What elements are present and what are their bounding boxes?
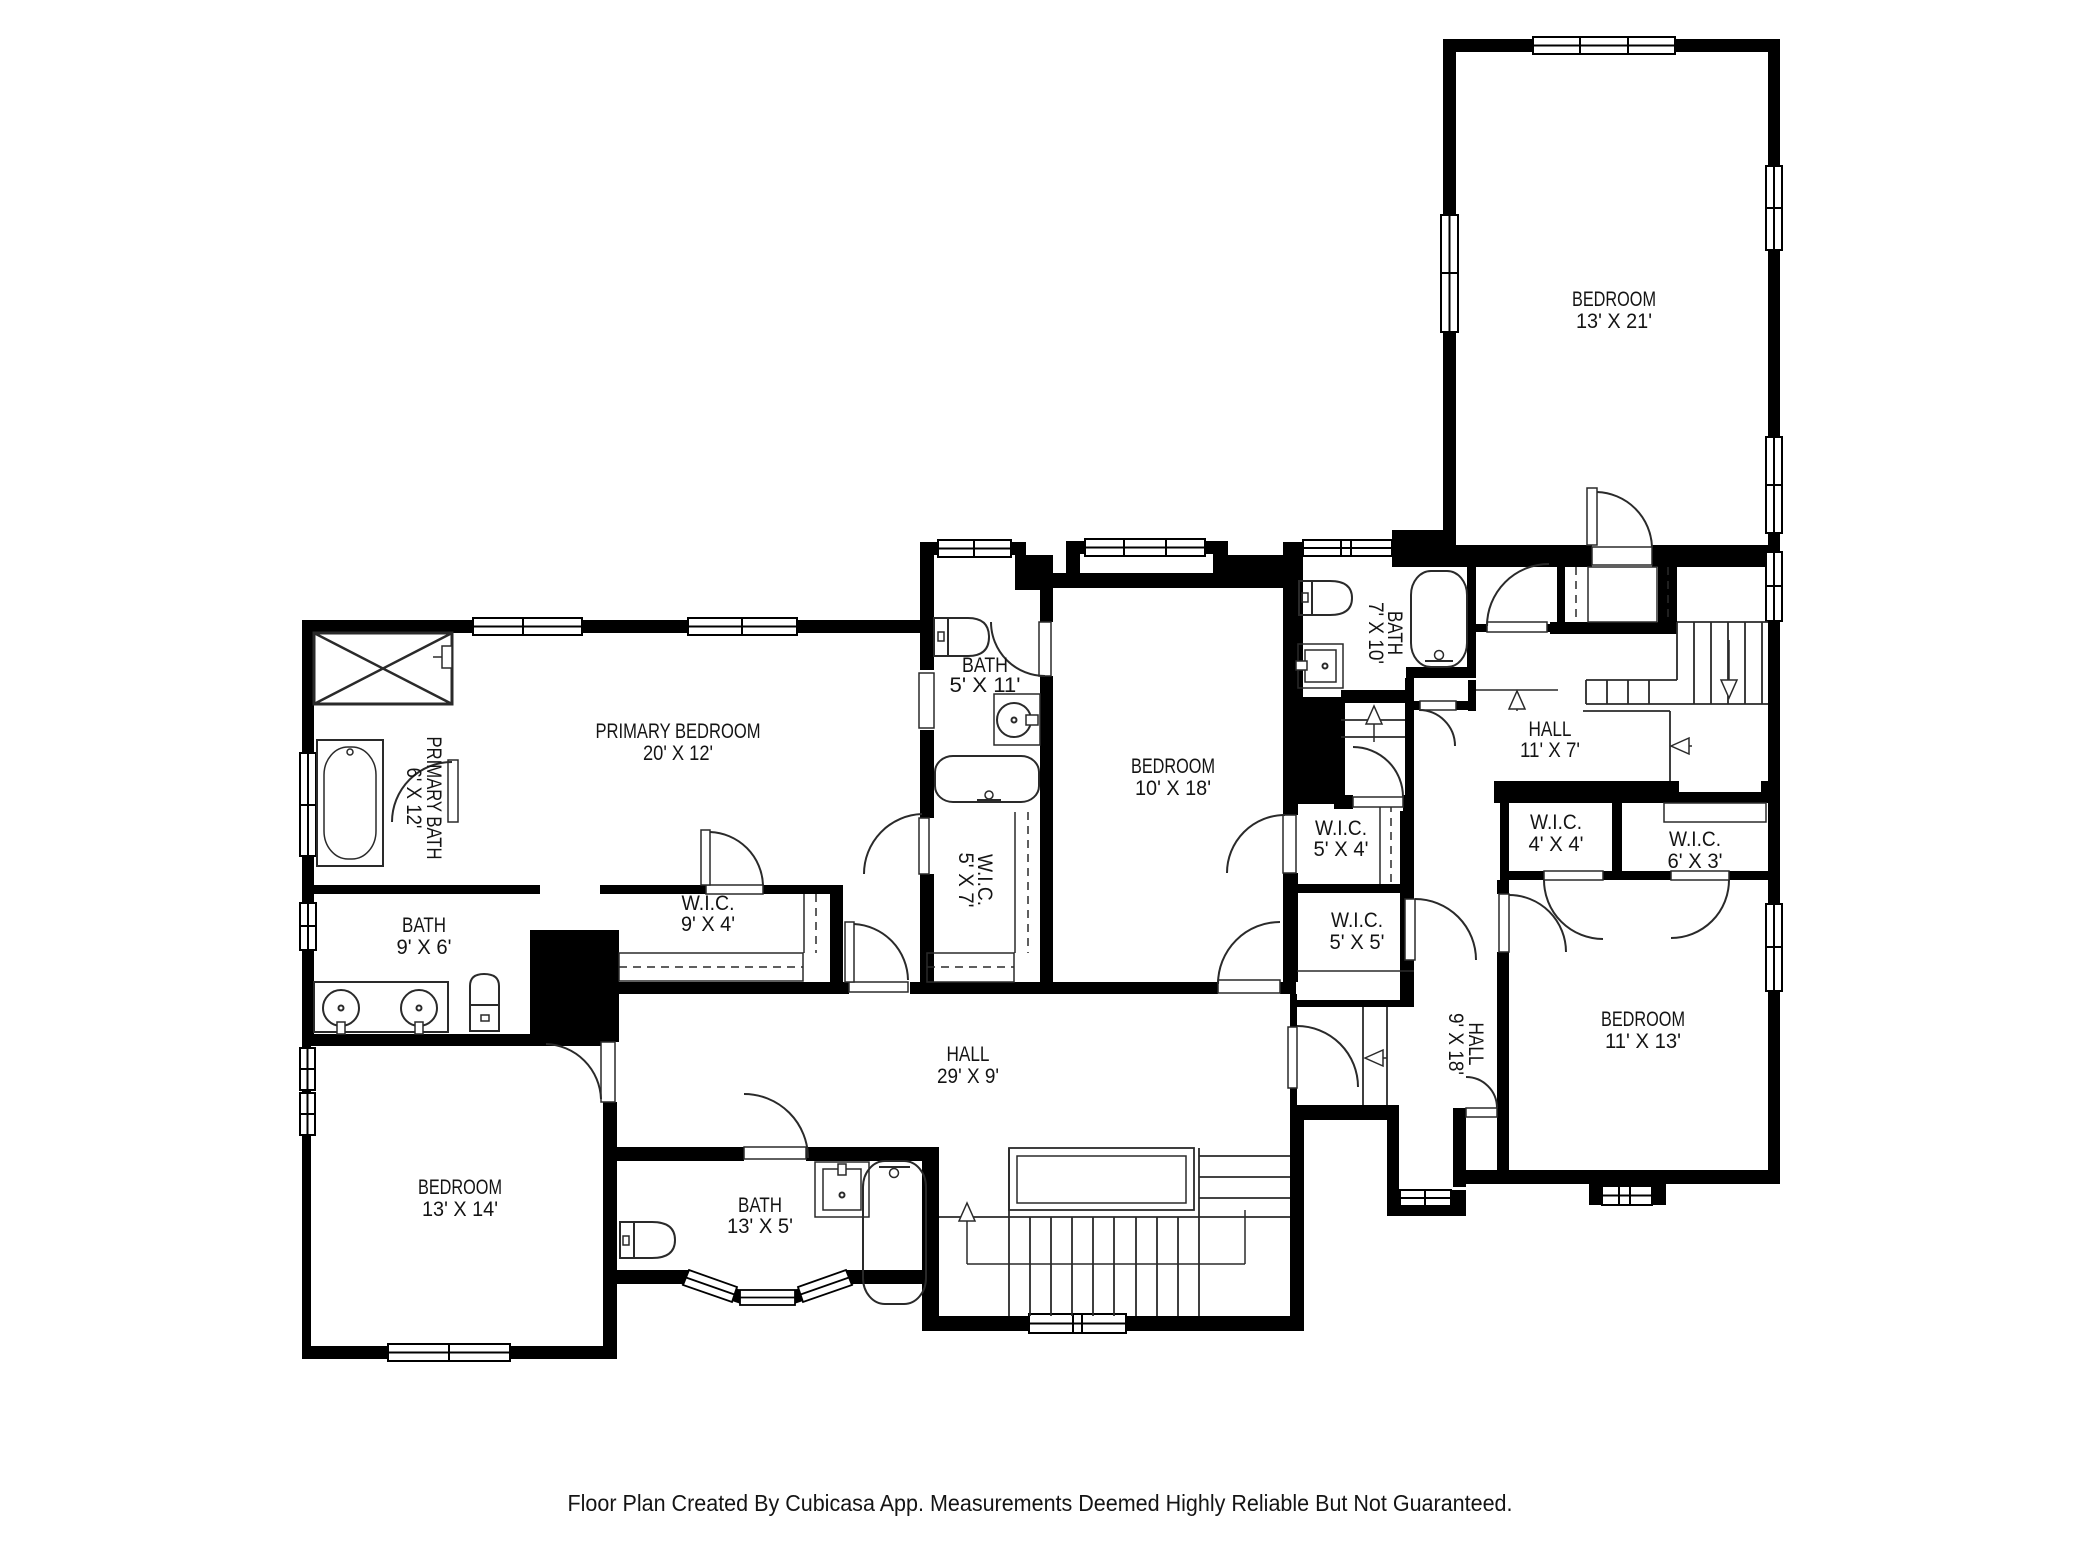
svg-text:5' X 5': 5' X 5'	[1330, 930, 1385, 954]
svg-text:HALL: HALL	[947, 1042, 990, 1066]
svg-text:W.I.C.: W.I.C.	[1669, 827, 1721, 851]
svg-text:20' X 12': 20' X 12'	[643, 741, 713, 765]
svg-text:BEDROOM: BEDROOM	[418, 1175, 502, 1199]
svg-text:BEDROOM: BEDROOM	[1131, 754, 1215, 778]
svg-text:11' X 13': 11' X 13'	[1605, 1029, 1681, 1053]
svg-text:13' X 21': 13' X 21'	[1576, 309, 1652, 333]
svg-text:9' X 6': 9' X 6'	[397, 935, 452, 959]
svg-text:4' X 4': 4' X 4'	[1529, 832, 1584, 856]
svg-text:W.I.C.: W.I.C.	[1331, 908, 1383, 932]
svg-text:13' X 14': 13' X 14'	[422, 1197, 498, 1221]
svg-text:W.I.C.: W.I.C.	[1530, 810, 1582, 834]
svg-text:29' X 9': 29' X 9'	[937, 1064, 999, 1088]
svg-text:7' X 10': 7' X 10'	[1364, 602, 1388, 664]
svg-text:10' X 18': 10' X 18'	[1135, 776, 1211, 800]
svg-text:5' X 4': 5' X 4'	[1314, 837, 1369, 861]
svg-text:PRIMARY BEDROOM: PRIMARY BEDROOM	[596, 719, 761, 743]
svg-text:6' X 12': 6' X 12'	[402, 768, 426, 829]
svg-text:6' X 3': 6' X 3'	[1668, 849, 1723, 873]
svg-text:BEDROOM: BEDROOM	[1601, 1007, 1685, 1031]
svg-text:5' X 11': 5' X 11'	[950, 673, 1021, 697]
svg-text:13' X 5': 13' X 5'	[727, 1214, 793, 1238]
svg-text:9' X 4': 9' X 4'	[681, 912, 735, 936]
svg-text:BEDROOM: BEDROOM	[1572, 287, 1656, 311]
svg-text:9' X 18': 9' X 18'	[1444, 1013, 1468, 1075]
svg-text:Floor Plan Created By Cubicasa: Floor Plan Created By Cubicasa App. Meas…	[568, 1490, 1513, 1516]
svg-text:5' X 7': 5' X 7'	[954, 853, 978, 908]
svg-text:BATH: BATH	[402, 913, 446, 937]
svg-text:11' X 7': 11' X 7'	[1520, 738, 1580, 762]
